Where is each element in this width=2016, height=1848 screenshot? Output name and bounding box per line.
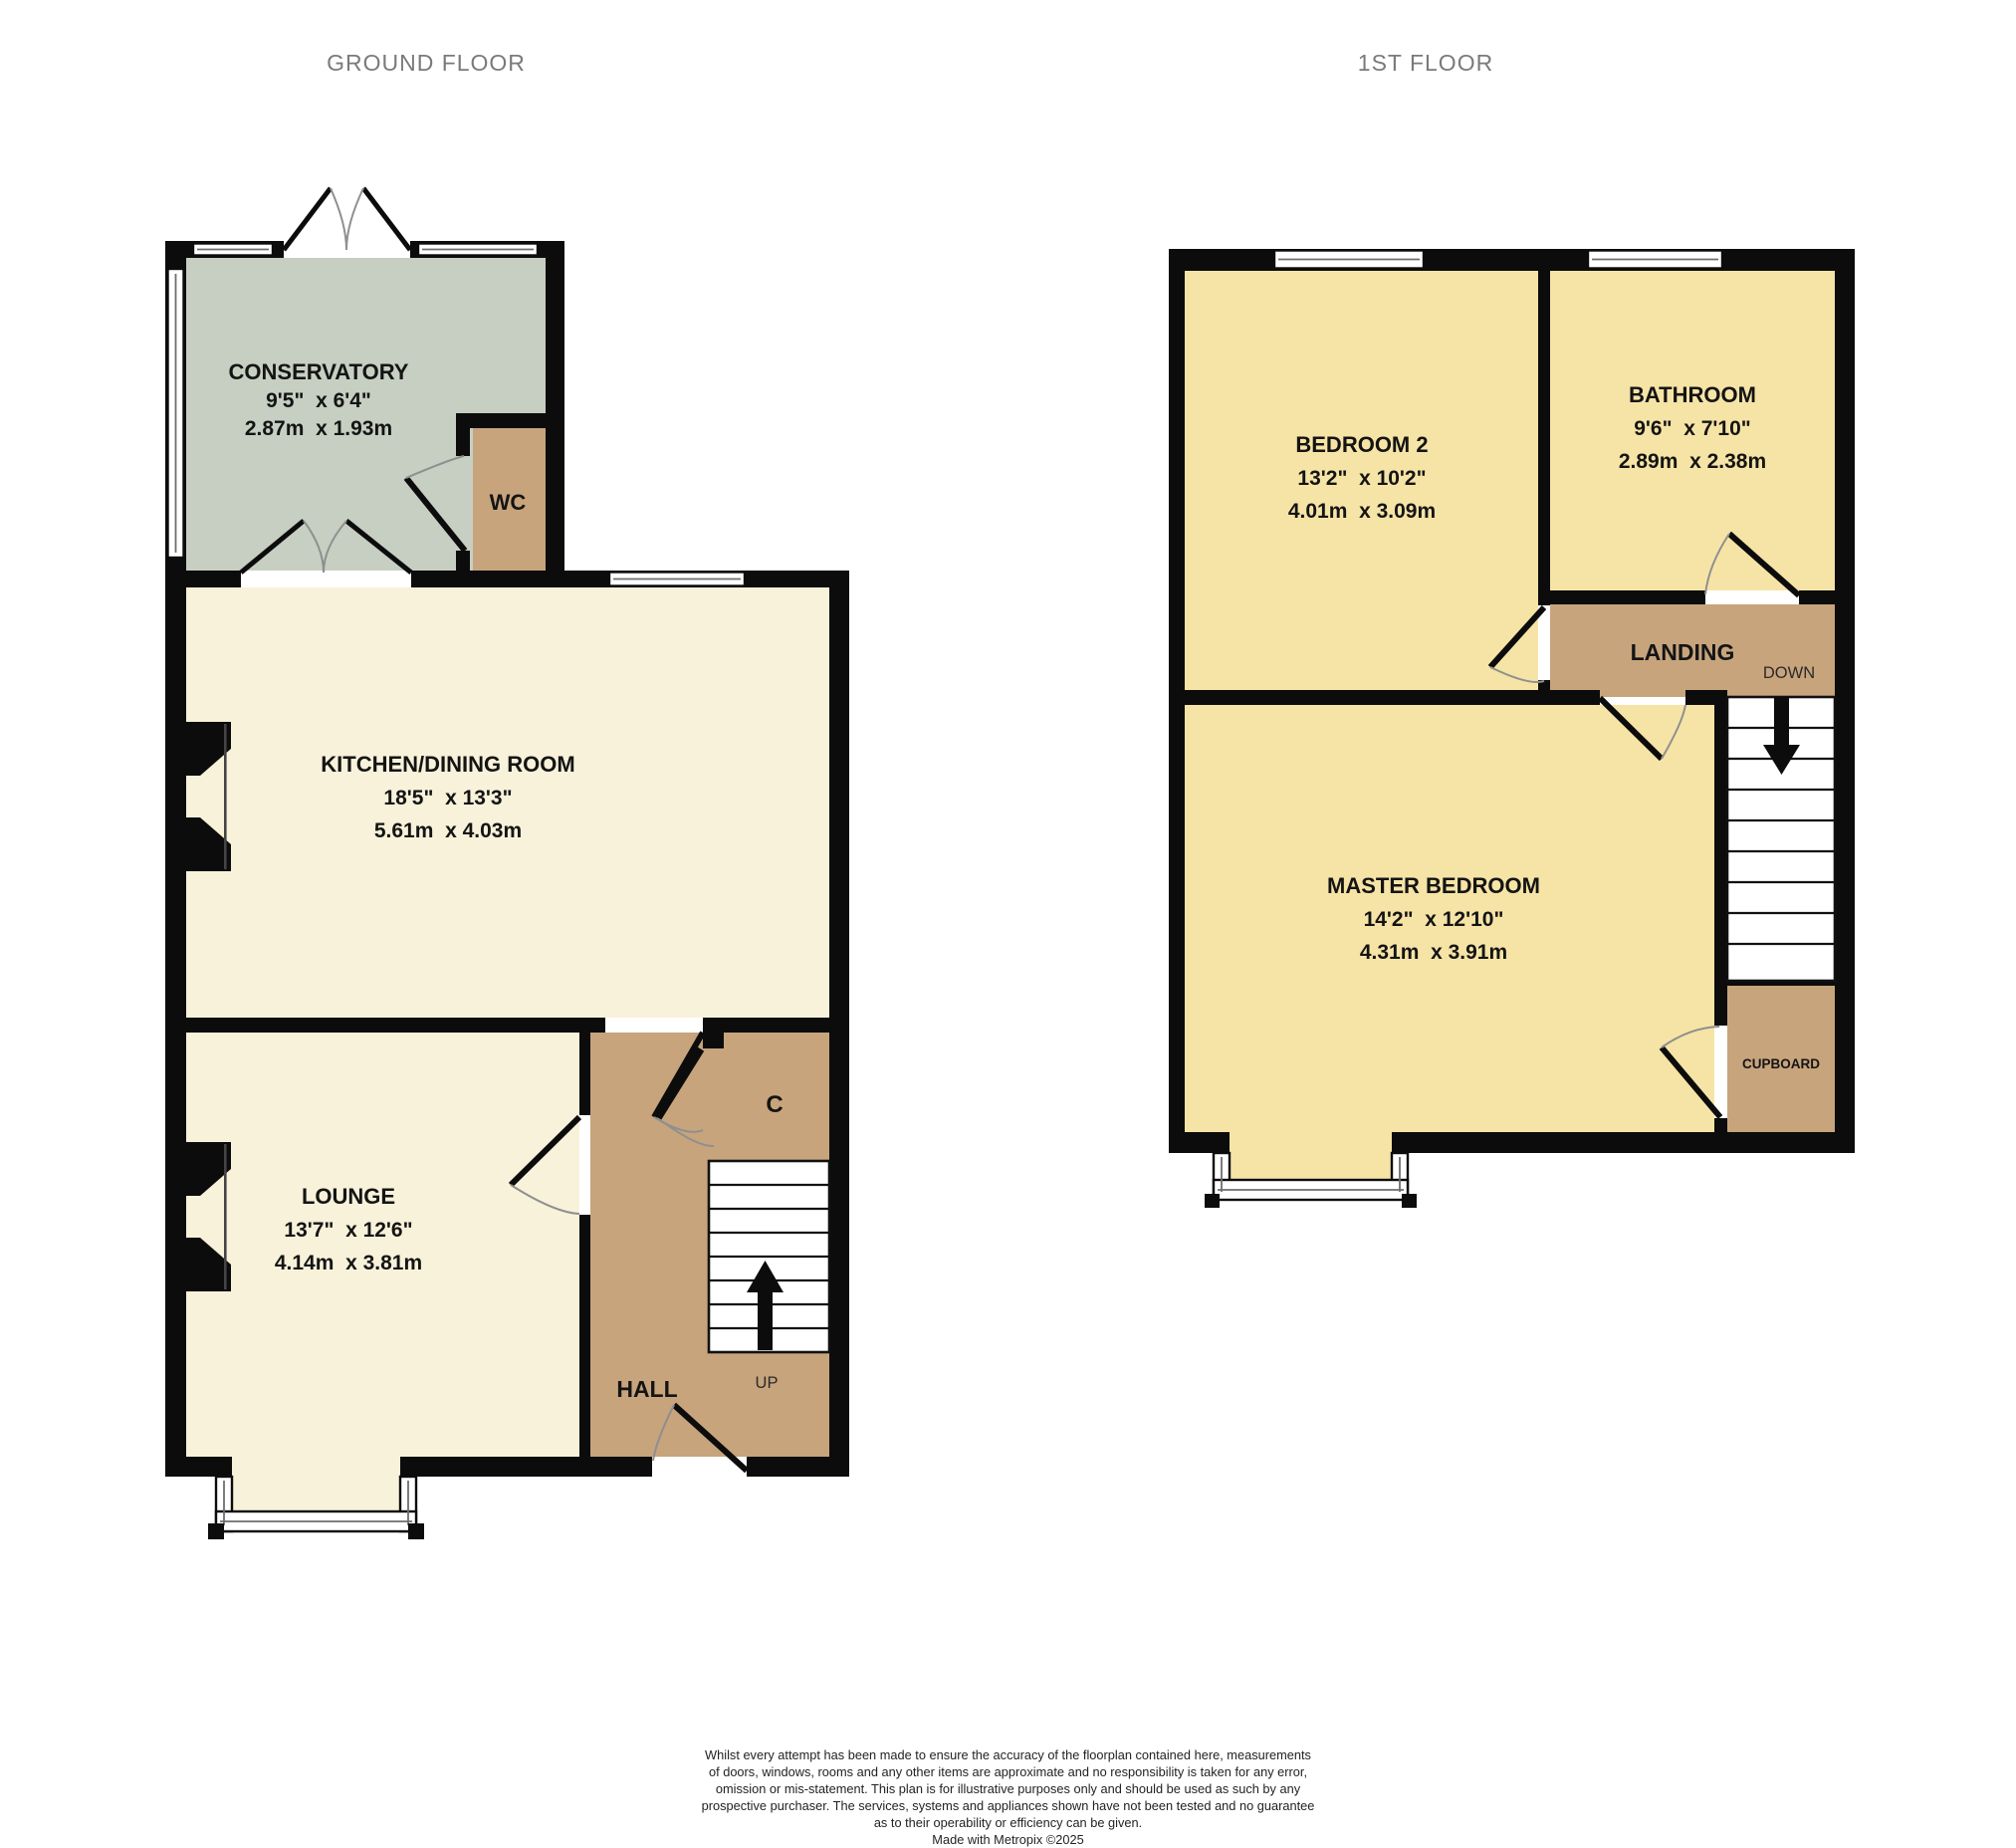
wall-segment [1714, 1118, 1727, 1132]
conservatory-exterior-french-doors [284, 188, 410, 250]
conservatory-metric: 2.87m x 1.93m [245, 417, 392, 440]
wall-segment [703, 1018, 724, 1048]
lounge-label: LOUNGE [302, 1184, 395, 1209]
wall-segment [456, 413, 546, 428]
conservatory-side-window [168, 269, 184, 558]
disclaimer: Whilst every attempt has been made to en… [0, 1746, 2016, 1848]
disclaimer-line: omission or mis-statement. This plan is … [0, 1780, 2016, 1797]
metropix-credit: Made with Metropix ©2025 [0, 1831, 2016, 1848]
landing-label: LANDING [1631, 639, 1735, 665]
wall-segment [1550, 590, 1705, 604]
master-bedroom-metric: 4.31m x 3.91m [1360, 941, 1507, 964]
disclaimer-line: Whilst every attempt has been made to en… [0, 1746, 2016, 1763]
wall-segment [1183, 690, 1600, 705]
wall-segment [1392, 1132, 1855, 1153]
bedroom2-window [1274, 251, 1424, 269]
wall-segment [579, 1215, 590, 1457]
disclaimer-line: prospective purchaser. The services, sys… [0, 1797, 2016, 1814]
kitchen-imperial: 18'5" x 13'3" [383, 787, 512, 809]
stairs-up-label: UP [756, 1374, 779, 1392]
conservatory-imperial: 9'5" x 6'4" [266, 389, 371, 412]
conservatory-top-window-right [418, 244, 538, 256]
bathroom-label: BATHROOM [1629, 382, 1756, 407]
wall-segment [1169, 1132, 1230, 1153]
wc-label: WC [490, 490, 527, 515]
wall-segment [1799, 590, 1835, 604]
wall-segment [546, 241, 564, 587]
floorplan-svg: CONSERVATORY 9'5" x 6'4" 2.87m x 1.93m W… [0, 0, 2016, 1846]
disclaimer-line: of doors, windows, rooms and any other i… [0, 1763, 2016, 1780]
bathroom-imperial: 9'6" x 7'10" [1634, 417, 1750, 440]
ground-floor-plan: CONSERVATORY 9'5" x 6'4" 2.87m x 1.93m W… [165, 188, 849, 1539]
wall-segment [829, 571, 849, 1477]
kitchen-window [609, 573, 745, 586]
conservatory-label: CONSERVATORY [229, 359, 409, 384]
wall-segment [1169, 249, 1855, 271]
wall-segment [400, 1457, 652, 1477]
wall-segment [456, 551, 470, 571]
conservatory-top-window-left [193, 244, 273, 256]
wall-segment [1685, 690, 1727, 705]
first-floor-stairs [1727, 697, 1835, 981]
wall-segment [747, 1457, 849, 1477]
lounge-room [186, 1033, 579, 1457]
ground-floor-stairs [709, 1161, 829, 1352]
stairs-down-label: DOWN [1763, 664, 1815, 682]
master-bay-interior [1230, 1132, 1392, 1180]
wall-segment [165, 571, 241, 587]
lounge-metric: 4.14m x 3.81m [275, 1252, 422, 1274]
bedroom2-imperial: 13'2" x 10'2" [1297, 467, 1426, 490]
master-bedroom-label: MASTER BEDROOM [1327, 873, 1540, 898]
lounge-imperial: 13'7" x 12'6" [284, 1219, 412, 1242]
kitchen-label: KITCHEN/DINING ROOM [321, 752, 574, 777]
cupboard-label: CUPBOARD [1742, 1056, 1820, 1071]
wall-segment [186, 1018, 605, 1033]
bedroom2-label: BEDROOM 2 [1295, 432, 1428, 457]
hall-label: HALL [616, 1376, 677, 1402]
wall-segment [1169, 249, 1185, 1153]
disclaimer-line: as to their operability or efficiency ca… [0, 1814, 2016, 1831]
bedroom2-metric: 4.01m x 3.09m [1288, 500, 1436, 523]
understairs-cupboard-label: C [766, 1091, 783, 1118]
wall-segment [579, 1033, 590, 1115]
wall-segment [456, 428, 470, 456]
master-bedroom-imperial: 14'2" x 12'10" [1364, 908, 1504, 931]
bathroom-window [1588, 251, 1722, 269]
first-floor-plan: BEDROOM 2 13'2" x 10'2" 4.01m x 3.09m BA… [1169, 249, 1855, 1208]
lounge-bay-interior [232, 1457, 400, 1511]
bathroom-metric: 2.89m x 2.38m [1619, 450, 1766, 473]
wall-segment [1714, 705, 1727, 1026]
kitchen-metric: 5.61m x 4.03m [374, 819, 522, 842]
wall-segment [165, 1457, 232, 1477]
wall-segment [1835, 249, 1855, 1153]
wall-segment [1538, 271, 1550, 605]
